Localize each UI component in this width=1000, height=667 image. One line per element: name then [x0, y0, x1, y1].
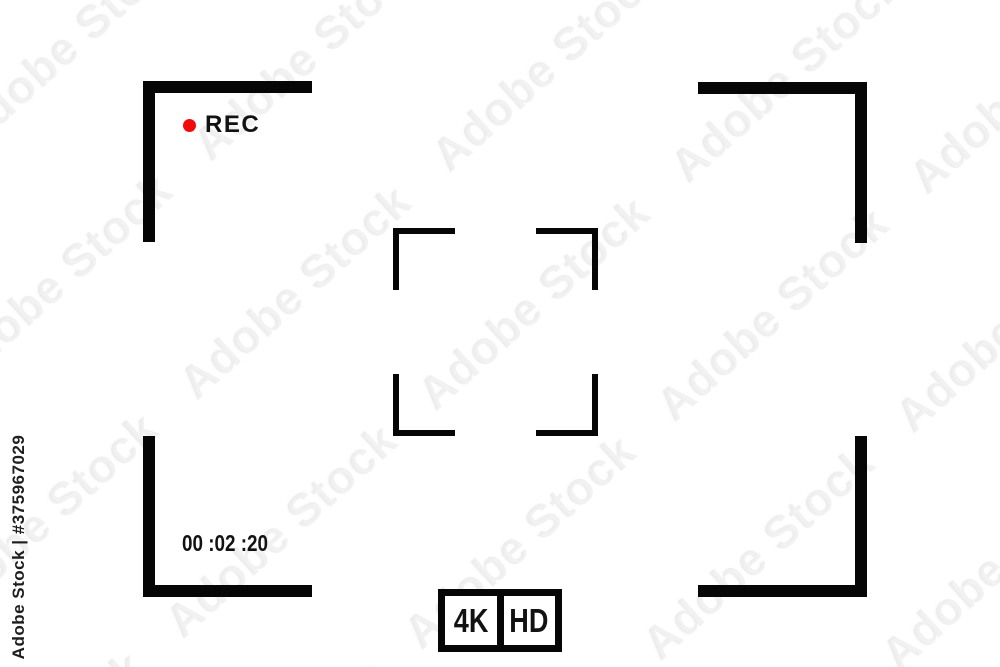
stock-attribution-text: Adobe Stock | #375967029 [9, 435, 29, 660]
frame-corner-top-left [143, 81, 312, 242]
badge-divider [497, 596, 504, 645]
rec-label: REC [205, 113, 260, 137]
frame-corner-bottom-right [698, 436, 867, 597]
watermark-tile: Adobe Stock [898, 0, 1000, 203]
watermark-tile: Adobe Stock [421, 0, 674, 181]
frame-corner-bottom-left [143, 436, 312, 597]
rec-indicator: REC [183, 113, 260, 137]
rec-dot-icon [183, 119, 196, 132]
resolution-badge: 4K HD [438, 589, 562, 652]
focus-corner-bottom-right [536, 374, 598, 436]
badge-hd-label: HD [510, 604, 549, 637]
badge-cell-4k: 4K [445, 596, 497, 645]
badge-4k-label: 4K [453, 604, 488, 637]
focus-frame [393, 228, 598, 436]
watermark-tile: Adobe Stock [871, 445, 1000, 667]
watermark-tile: Adobe Stock [884, 206, 1000, 442]
recording-timer: 00 :02 :20 [182, 532, 268, 555]
focus-corner-bottom-left [393, 374, 455, 436]
viewfinder-stage: Adobe StockAdobe StockAdobe StockAdobe S… [0, 0, 1000, 667]
watermark-tile: Adobe Stock [140, 650, 393, 667]
badge-cell-hd: HD [504, 596, 556, 645]
focus-corner-top-left [393, 228, 455, 290]
frame-corner-top-right [698, 82, 867, 243]
watermark-tile: Adobe Stock [379, 661, 632, 667]
focus-corner-top-right [536, 228, 598, 290]
